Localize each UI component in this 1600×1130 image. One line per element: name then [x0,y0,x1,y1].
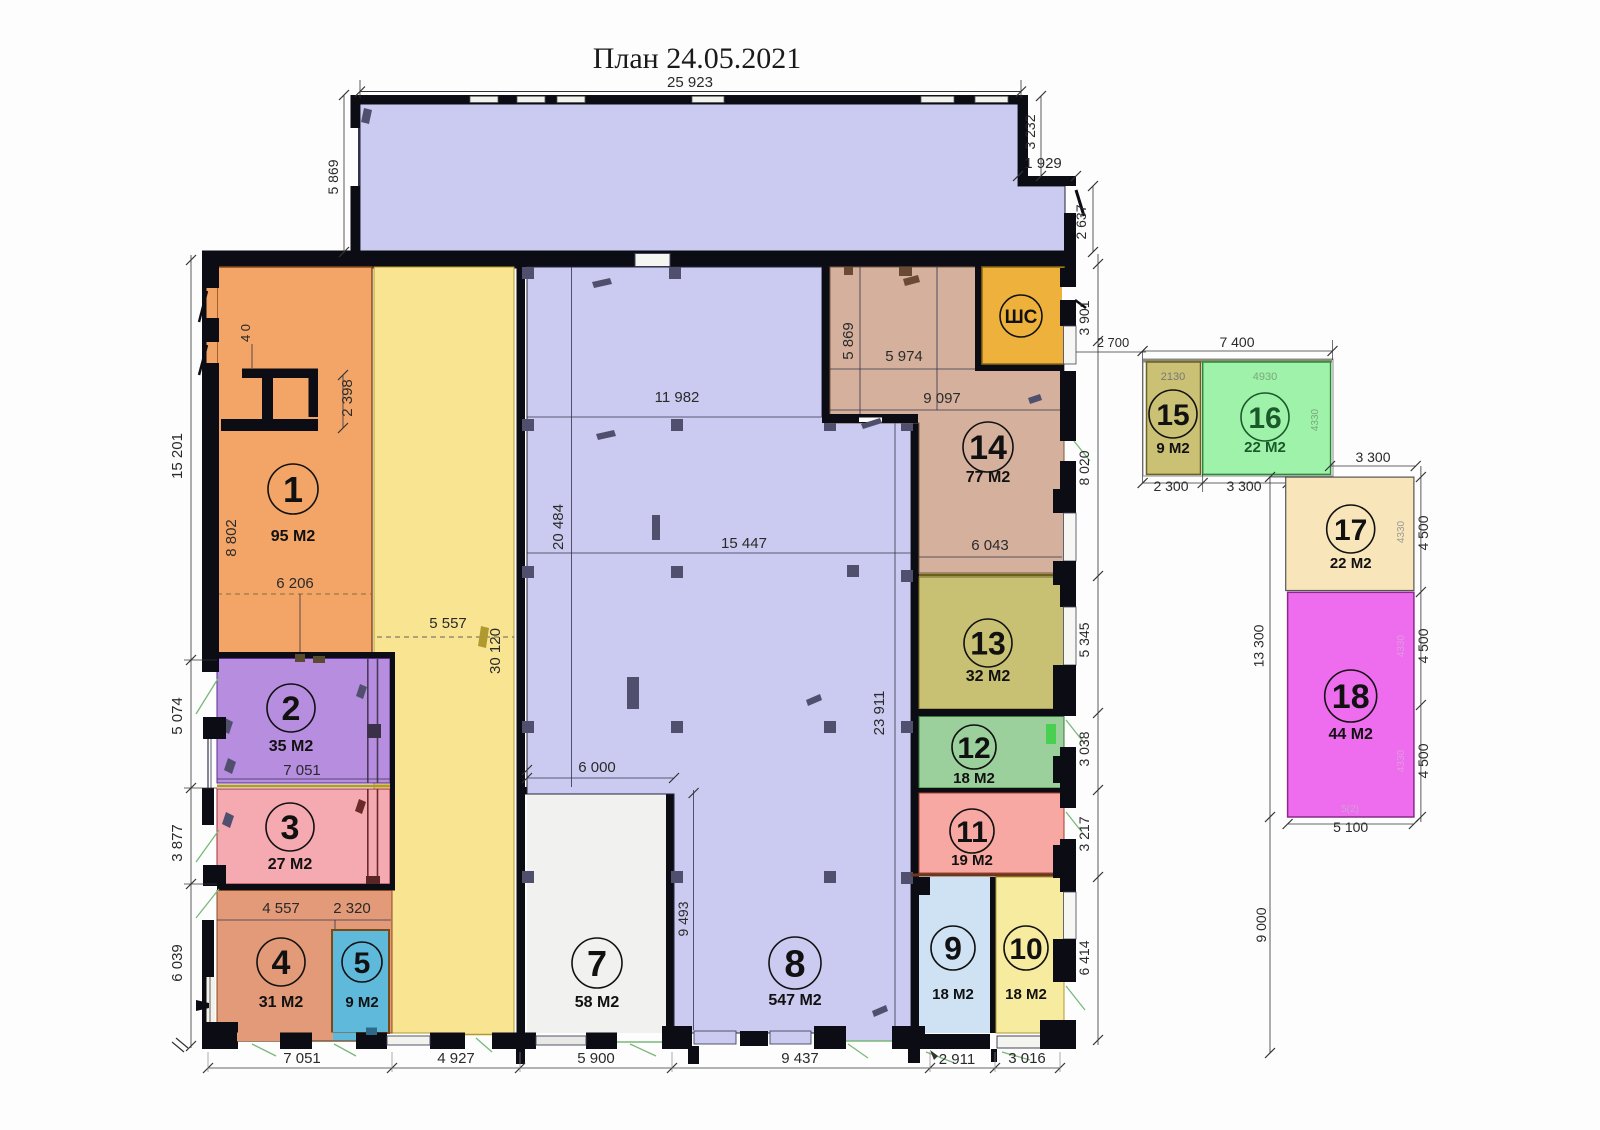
svg-text:3 901: 3 901 [1076,300,1092,335]
svg-text:7 051: 7 051 [283,1050,321,1067]
svg-text:32 М2: 32 М2 [966,668,1011,685]
svg-text:2 398: 2 398 [339,379,356,417]
svg-text:4330: 4330 [1396,634,1407,657]
svg-text:11: 11 [956,816,988,849]
svg-text:18 М2: 18 М2 [1005,986,1047,1003]
svg-text:6 206: 6 206 [276,575,314,592]
svg-text:8: 8 [784,944,805,986]
svg-text:77 М2: 77 М2 [966,469,1011,486]
svg-text:1: 1 [283,469,303,510]
svg-text:4930: 4930 [1253,371,1277,383]
svg-text:30 120: 30 120 [487,628,504,674]
svg-text:2 700: 2 700 [1097,335,1130,350]
svg-text:58 М2: 58 М2 [575,994,620,1011]
svg-text:13 300: 13 300 [1250,624,1266,667]
svg-text:4330: 4330 [1310,408,1321,431]
svg-text:16: 16 [1248,402,1281,435]
svg-text:3 038: 3 038 [1076,731,1092,766]
svg-text:5(2): 5(2) [1341,804,1359,815]
svg-text:4 500: 4 500 [1415,515,1431,550]
svg-text:План 24.05.2021: План 24.05.2021 [593,42,802,75]
svg-text:4 500: 4 500 [1415,743,1431,778]
svg-text:3 217: 3 217 [1076,816,1092,851]
svg-text:ШС: ШС [1005,307,1038,328]
svg-text:3 300: 3 300 [1226,478,1261,494]
svg-text:2 911: 2 911 [939,1051,975,1068]
svg-text:31 М2: 31 М2 [259,994,304,1011]
svg-text:2 300: 2 300 [1153,478,1188,494]
svg-text:23 911: 23 911 [871,691,888,736]
svg-text:5 074: 5 074 [169,697,186,735]
svg-text:15 447: 15 447 [721,535,767,552]
svg-text:4 557: 4 557 [262,900,300,917]
svg-text:6 414: 6 414 [1076,940,1092,975]
svg-text:19 М2: 19 М2 [951,852,993,869]
svg-text:22 М2: 22 М2 [1244,439,1286,456]
svg-text:4 927: 4 927 [437,1050,475,1067]
svg-text:2130: 2130 [1161,371,1185,383]
svg-text:4330: 4330 [1396,749,1407,772]
svg-text:7 051: 7 051 [283,762,321,779]
svg-text:6 043: 6 043 [971,537,1009,554]
svg-text:5 869: 5 869 [325,159,341,194]
svg-text:9 437: 9 437 [781,1050,819,1067]
svg-text:13: 13 [970,626,1006,662]
svg-text:3 016: 3 016 [1008,1050,1046,1067]
svg-text:9: 9 [944,931,962,967]
svg-text:3 300: 3 300 [1355,449,1390,465]
svg-text:14: 14 [969,429,1007,467]
svg-text:4330: 4330 [1396,520,1407,543]
svg-text:5 557: 5 557 [429,615,467,632]
svg-text:1 929: 1 929 [1024,155,1062,172]
svg-text:5 345: 5 345 [1076,622,1092,657]
svg-text:18 М2: 18 М2 [953,770,995,787]
svg-text:44 М2: 44 М2 [1328,726,1373,743]
svg-text:20 484: 20 484 [550,504,567,550]
svg-text:9 097: 9 097 [923,390,961,407]
svg-text:17: 17 [1334,514,1367,547]
svg-text:12: 12 [957,732,990,765]
svg-text:3: 3 [281,809,300,847]
svg-text:4 500: 4 500 [1415,628,1431,663]
svg-text:15: 15 [1156,399,1189,432]
svg-text:22 М2: 22 М2 [1330,555,1372,572]
svg-text:9 М2: 9 М2 [1156,440,1189,457]
svg-text:10: 10 [1009,933,1042,966]
svg-text:4: 4 [272,944,291,982]
svg-text:18: 18 [1332,678,1370,716]
svg-text:18 М2: 18 М2 [932,986,974,1003]
svg-text:8 020: 8 020 [1076,450,1092,485]
svg-text:2: 2 [282,690,301,728]
svg-text:6 039: 6 039 [169,944,186,982]
svg-text:15 201: 15 201 [169,433,186,479]
svg-text:7 400: 7 400 [1219,334,1254,350]
svg-text:27 М2: 27 М2 [268,856,313,873]
svg-text:11 982: 11 982 [655,389,700,406]
svg-text:35 М2: 35 М2 [269,738,314,755]
svg-text:547 М2: 547 М2 [768,992,821,1009]
svg-text:7: 7 [587,943,607,984]
svg-text:6 000: 6 000 [578,759,616,776]
svg-text:5 974: 5 974 [885,348,923,365]
svg-text:9 000: 9 000 [1253,907,1269,942]
svg-text:9 493: 9 493 [675,901,691,936]
svg-text:2 637: 2 637 [1073,204,1089,239]
svg-text:2 320: 2 320 [333,900,371,917]
svg-text:3 232: 3 232 [1022,114,1038,149]
svg-text:25 923: 25 923 [667,74,713,91]
svg-text:4 0: 4 0 [238,324,253,342]
svg-text:95 М2: 95 М2 [271,528,316,545]
svg-text:9 М2: 9 М2 [345,994,378,1011]
svg-text:3 877: 3 877 [169,824,186,862]
svg-text:5: 5 [354,947,371,980]
svg-text:8 802: 8 802 [223,519,240,557]
svg-text:5 900: 5 900 [577,1050,615,1067]
svg-text:5 869: 5 869 [840,322,857,360]
svg-text:5 100: 5 100 [1333,819,1368,835]
